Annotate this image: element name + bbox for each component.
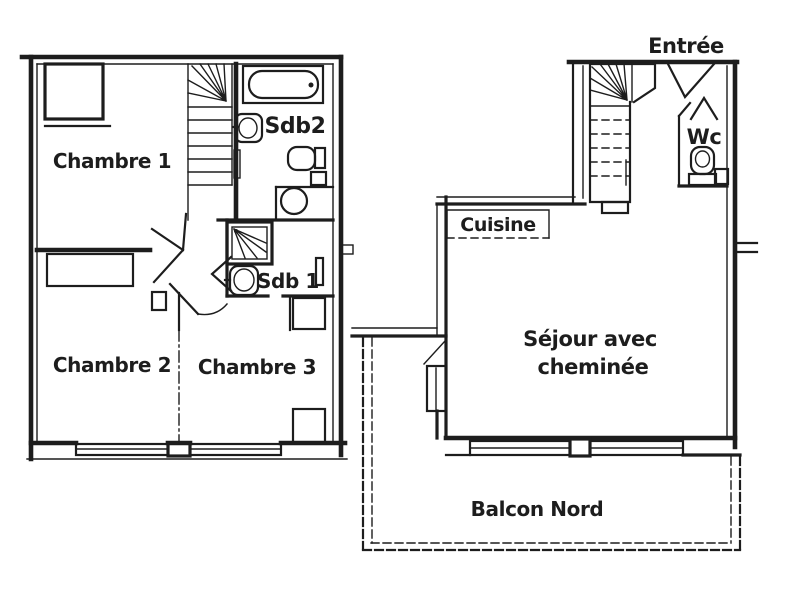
west-window bbox=[424, 341, 446, 438]
label-sejour-line1: Séjour avec bbox=[523, 327, 657, 351]
closet-chambre3-bottom bbox=[293, 409, 325, 443]
label-sdb2: Sdb2 bbox=[264, 114, 325, 139]
bathtub-icon bbox=[243, 66, 323, 103]
label-cuisine: Cuisine bbox=[460, 214, 535, 236]
floorplan-svg: Chambre 1 Chambre 2 Chambre 3 Sdb2 Sdb 1 bbox=[0, 0, 800, 603]
label-wc: Wc bbox=[687, 125, 722, 149]
label-entree: Entrée bbox=[648, 34, 724, 58]
entry-door-swing bbox=[668, 64, 714, 97]
toilet-sdb2-icon bbox=[288, 147, 326, 185]
floorplan-canvas: Chambre 1 Chambre 2 Chambre 3 Sdb2 Sdb 1 bbox=[0, 0, 800, 603]
wardrobe-chambre2 bbox=[47, 254, 133, 286]
label-sejour-line2: cheminée bbox=[538, 355, 649, 379]
label-balcon-nord: Balcon Nord bbox=[471, 497, 604, 521]
main-floor-plan: Entrée Wc Cuisine Séjour avec cheminée B… bbox=[352, 34, 757, 550]
upper-floor-plan: Chambre 1 Chambre 2 Chambre 3 Sdb2 Sdb 1 bbox=[22, 57, 353, 459]
windows-main bbox=[446, 438, 740, 456]
wc-door-swing bbox=[691, 98, 717, 119]
door-swings-upper bbox=[152, 214, 231, 315]
label-chambre-2: Chambre 2 bbox=[53, 353, 171, 377]
bidet-sdb2-icon bbox=[276, 187, 333, 220]
label-chambre-1: Chambre 1 bbox=[53, 149, 171, 173]
balcony-door-swing bbox=[424, 341, 445, 364]
label-chambre-3: Chambre 3 bbox=[198, 355, 316, 379]
staircase-upper bbox=[188, 64, 236, 220]
closet-chambre1 bbox=[45, 64, 110, 126]
toilet-wc-icon bbox=[689, 147, 728, 185]
exterior-walls-main bbox=[352, 62, 757, 447]
staircase-main bbox=[590, 64, 655, 213]
closet-chambre3-top bbox=[293, 298, 325, 329]
label-sdb1: Sdb 1 bbox=[257, 269, 319, 293]
